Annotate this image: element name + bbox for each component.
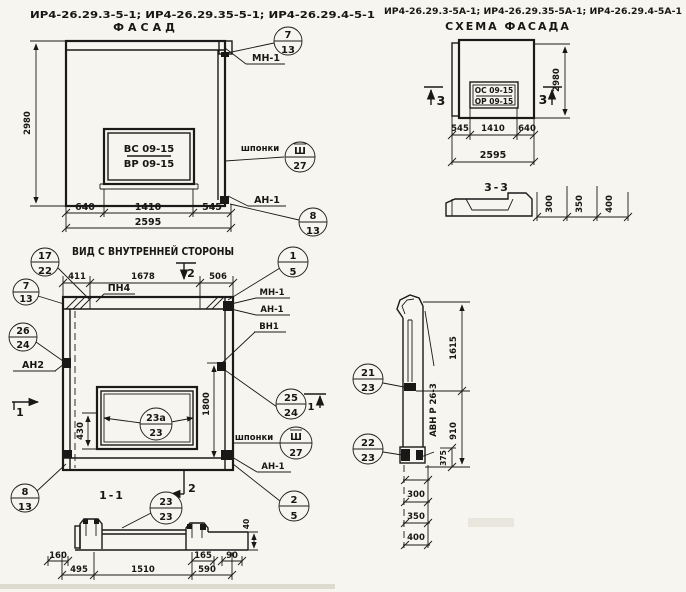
dim-90: 90 [226, 551, 238, 561]
scan-smudge [0, 584, 335, 589]
sheet-headers: ИР4-26.29.3-5-1; ИР4-26.29.35-5-1; ИР4-2… [30, 7, 682, 21]
scheme-mark-bot: ОР 09-15 [475, 97, 513, 106]
scheme-height-dim: 2980 [552, 68, 562, 92]
svg-text:27: 27 [293, 161, 306, 172]
svg-text:27: 27 [289, 448, 302, 459]
section33-profile [446, 193, 532, 216]
rightsec-profile [403, 306, 423, 447]
svg-text:5: 5 [290, 267, 297, 278]
section33-title: 3-3 [484, 181, 510, 194]
svg-text:22: 22 [38, 266, 52, 277]
embed-bottom-right [221, 450, 232, 460]
svg-text:Ш: Ш [290, 432, 302, 443]
callout-2-5: 2 5 [279, 491, 309, 522]
svg-text:1: 1 [290, 251, 297, 262]
callout-23a-23: 23а 23 [140, 408, 172, 440]
svg-text:23а: 23а [146, 413, 166, 424]
label-an1-inner: АН-1 [260, 305, 283, 315]
label-pn4: ПН4 [108, 283, 131, 294]
dim-1678: 1678 [131, 272, 155, 282]
svg-text:23: 23 [361, 383, 375, 394]
embed-left [63, 358, 71, 368]
svg-text:17: 17 [38, 251, 52, 262]
callout-21-23: 21 23 [353, 364, 383, 394]
callout-8-13: 8 13 [299, 208, 327, 237]
callout-26-24: 26 24 [9, 323, 37, 351]
svg-text:25: 25 [284, 393, 298, 404]
dim-300: 300 [407, 490, 425, 500]
dim33-350: 350 [575, 195, 585, 213]
section-3-3: 3-3 300 350 400 [446, 181, 632, 221]
dim-400: 400 [407, 533, 425, 543]
section11-title: 1-1 [99, 489, 125, 502]
dim-1615: 1615 [449, 336, 459, 360]
facade-title: ФАСАД [113, 21, 179, 34]
callout-17-22: 17 22 [31, 248, 59, 277]
dim-2595s: 2595 [480, 150, 506, 161]
callout-1-5: 1 5 [278, 247, 308, 278]
callout-22-23: 22 23 [353, 434, 383, 464]
svg-text:23: 23 [149, 428, 162, 439]
facade-window-mark-bot: ВР 09-15 [124, 159, 174, 170]
dim-590: 590 [198, 565, 216, 575]
dim-1410s: 1410 [481, 124, 505, 134]
section3-left: 3 [437, 93, 446, 108]
embed-bottom-left [64, 450, 72, 458]
rightsec-embed-mid [404, 383, 416, 391]
facade-window-mark-top: ВС 09-15 [124, 144, 174, 155]
facade-height-dim: 2980 [23, 111, 33, 135]
blueprint-scan: ИР4-26.29.3-5-1; ИР4-26.29.35-5-1; ИР4-2… [0, 0, 686, 592]
svg-text:13: 13 [19, 294, 32, 305]
dim33-300: 300 [545, 195, 555, 213]
label-mn1-inner: МН-1 [259, 288, 284, 298]
scan-smudge-2 [468, 518, 514, 527]
svg-text:22: 22 [361, 438, 375, 449]
rightsec-embed-bottom [401, 449, 410, 461]
dim-165: 165 [194, 551, 212, 561]
svg-text:23: 23 [159, 512, 172, 523]
dim-430: 430 [76, 422, 86, 440]
label-an2: АН2 [22, 360, 44, 371]
dim-495: 495 [70, 565, 88, 575]
svg-text:7: 7 [285, 30, 292, 41]
dim-2595: 2595 [135, 217, 161, 228]
section2-top: 2 [187, 267, 195, 280]
svg-text:2: 2 [291, 495, 298, 506]
svg-text:5: 5 [291, 511, 298, 522]
right-section-drawing: АВН Р 26-3 1615 910 375 300 350 400 21 2… [353, 295, 470, 549]
scheme-drawing: СХЕМА ФАСАДА ОС 09-15 ОР 09-15 3 3 2980 … [424, 20, 571, 166]
dim-375: 375 [439, 450, 448, 466]
callout-sh-27: Ш 27 [285, 142, 315, 172]
callout-7-13: 7 13 [274, 27, 302, 56]
dim-1510: 1510 [131, 565, 155, 575]
section1-left: 1 [16, 406, 24, 419]
dim-910: 910 [449, 422, 459, 440]
dim-160: 160 [49, 551, 67, 561]
dim-350: 350 [407, 512, 425, 522]
left-series-codes: ИР4-26.29.3-5-1; ИР4-26.29.35-5-1; ИР4-2… [30, 10, 375, 21]
svg-text:Ш: Ш [294, 146, 306, 157]
svg-text:21: 21 [361, 368, 375, 379]
drawing-svg: ИР4-26.29.3-5-1; ИР4-26.29.35-5-1; ИР4-2… [0, 0, 686, 592]
inner-panel-outline [63, 297, 233, 470]
svg-text:8: 8 [310, 211, 317, 222]
dim33-400: 400 [605, 195, 615, 213]
svg-text:23: 23 [159, 497, 172, 508]
dim-640s: 640 [518, 124, 536, 134]
section2-bottom: 2 [188, 482, 196, 495]
inner-title: ВИД С ВНУТРЕННЕЙ СТОРОНЫ [72, 245, 234, 258]
section3-right: 3 [539, 92, 548, 107]
dim-545s: 545 [451, 124, 469, 134]
dim-1410: 1410 [135, 202, 162, 213]
scheme-title: СХЕМА ФАСАДА [445, 20, 571, 33]
inner-view-drawing: ВИД С ВНУТРЕННЕЙ СТОРОНЫ 411 1678 506 2 … [9, 245, 326, 522]
svg-text:23: 23 [361, 453, 375, 464]
dim-506: 506 [209, 272, 227, 282]
callout-25-24: 25 24 [276, 389, 306, 419]
callout-23-23: 23 23 [150, 492, 182, 524]
svg-text:24: 24 [16, 340, 30, 351]
facade-drawing: ФАСАД ВС 09-15 ВР 09-15 2980 640 1410 54… [23, 21, 327, 237]
right-series-codes: ИР4-26.29.3-5А-1; ИР4-26.29.35-5А-1; ИР4… [384, 7, 682, 17]
scheme-mark-top: ОС 09-15 [475, 86, 513, 95]
callout-8-13-inner: 8 13 [11, 484, 39, 513]
label-mn1: МН-1 [252, 53, 280, 64]
dim-40: 40 [242, 519, 251, 529]
label-vn1: ВН1 [259, 322, 279, 332]
callout-sh-27-inner: Ш 27 [280, 427, 312, 459]
svg-text:26: 26 [16, 326, 30, 337]
svg-text:13: 13 [18, 502, 32, 513]
section-1-1: 1-1 23 23 40 160 165 90 49 [44, 489, 258, 580]
svg-text:8: 8 [22, 487, 29, 498]
callout-7-13-inner: 7 13 [13, 279, 39, 305]
label-shponki-inner: шпонки [235, 433, 273, 443]
facade-panel-outline [66, 41, 225, 206]
dim-545: 545 [202, 202, 222, 213]
svg-text:7: 7 [23, 281, 30, 292]
svg-text:13: 13 [306, 226, 320, 237]
label-shponki: шпонки [241, 144, 279, 154]
svg-text:24: 24 [284, 408, 298, 419]
dim-640: 640 [75, 202, 95, 213]
svg-text:13: 13 [281, 45, 295, 56]
dim-1800: 1800 [202, 392, 212, 416]
label-an1-bottom: АН-1 [261, 462, 284, 472]
label-an1: АН-1 [254, 195, 280, 206]
section1-right: 1 [308, 402, 315, 413]
